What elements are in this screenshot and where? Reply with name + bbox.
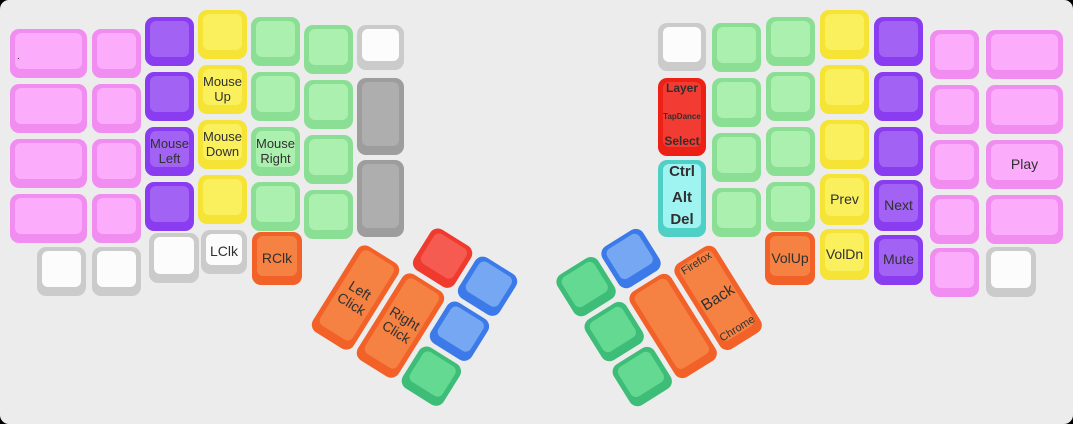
key-left-c5-r2[interactable] (251, 72, 300, 121)
keycap-top-surface (15, 33, 82, 69)
key-left-c4-r2[interactable]: Mouse Up (198, 65, 247, 114)
key-left-c3-bottom[interactable] (149, 233, 199, 283)
keycap-top-surface (203, 14, 242, 50)
key-left-c3-r1[interactable] (145, 17, 194, 66)
keycap-top-surface (991, 199, 1058, 235)
keycap-top-surface (825, 124, 864, 160)
keycap-top-surface (362, 29, 399, 61)
key-left-rclk[interactable]: RClk (252, 232, 302, 285)
keycap-top-surface (463, 259, 514, 309)
key-left-c7-r1[interactable] (357, 25, 404, 70)
keycap-top-surface (309, 84, 348, 120)
keycap-top-surface (879, 239, 918, 276)
keycap-top-surface (935, 89, 974, 125)
key-right-layer-select[interactable]: LayerTapDanceSelect (658, 78, 706, 156)
keycap-top-surface (257, 236, 297, 276)
keycap-top-surface (616, 349, 667, 399)
key-left-c5-r4[interactable] (251, 182, 300, 231)
key-left-c3-r4[interactable] (145, 182, 194, 231)
keycap-top-surface (203, 179, 242, 215)
key-right-c6-r3[interactable] (712, 133, 761, 182)
keycap-top-surface (717, 192, 756, 228)
key-left-c5-r1[interactable] (251, 17, 300, 66)
keycap-top-surface (604, 232, 655, 282)
key-left-c6-r3[interactable] (304, 135, 353, 184)
keycap-top-surface (935, 34, 974, 70)
key-left-c2-r3[interactable] (92, 139, 141, 188)
keymap-editor-canvas: .Mouse LeftMouse UpMouse DownLClkMouse R… (0, 0, 1073, 424)
keycap-top-surface (206, 234, 242, 265)
key-right-mute[interactable]: Mute (874, 235, 923, 285)
key-left-c2-r4[interactable] (92, 194, 141, 243)
keycap-top-surface (825, 233, 864, 271)
keycap-top-surface (717, 137, 756, 173)
keycap-top-surface (991, 144, 1058, 180)
key-right-c5-r2[interactable] (766, 72, 815, 121)
key-left-c1-r1[interactable]: . (10, 29, 87, 78)
keycap-top-surface (991, 34, 1058, 70)
keycap-top-surface (825, 14, 864, 50)
key-left-c6-r2[interactable] (304, 80, 353, 129)
keycap-top-surface (879, 184, 918, 222)
key-right-play[interactable]: Play (986, 140, 1063, 189)
key-right-c5-r1[interactable] (766, 17, 815, 66)
key-right-next[interactable]: Next (874, 180, 923, 231)
keycap-top-surface (407, 349, 458, 399)
key-right-c4-r2[interactable] (820, 65, 869, 114)
key-right-c1-r4[interactable] (986, 195, 1063, 244)
key-right-c4-r1[interactable] (820, 10, 869, 59)
keycap-top-surface (771, 186, 810, 222)
key-right-c3-r3[interactable] (874, 127, 923, 176)
keycap-top-surface (15, 88, 82, 124)
keycap-top-surface (559, 260, 610, 310)
key-left-c3-r3[interactable]: Mouse Left (145, 127, 194, 176)
keycap-top-surface (256, 186, 295, 222)
keycap-top-surface (203, 124, 242, 160)
keycap-top-surface (771, 131, 810, 167)
keycap-top-surface (825, 178, 864, 216)
keycap-top-surface (256, 21, 295, 57)
key-left-c2-r1[interactable] (92, 29, 141, 78)
keycap-top-surface (154, 237, 194, 274)
keycap-top-surface (879, 76, 918, 112)
key-left-c5-r3[interactable]: Mouse Right (251, 127, 300, 176)
keycap-top-surface (991, 251, 1031, 288)
keycap-top-surface (97, 198, 136, 234)
key-right-c2-r2[interactable] (930, 85, 979, 134)
key-right-c2-r3[interactable] (930, 140, 979, 189)
key-left-c6-r1[interactable] (304, 25, 353, 74)
key-right-c5-r4[interactable] (766, 182, 815, 231)
keycap-top-surface (309, 194, 348, 230)
key-right-voldn[interactable]: VolDn (820, 229, 869, 280)
key-left-c1-r4[interactable] (10, 194, 87, 243)
key-right-c6-r2[interactable] (712, 78, 761, 127)
keycap-top-surface (435, 304, 486, 354)
keycap-top-surface (663, 82, 701, 147)
keycap-top-surface (879, 131, 918, 167)
key-right-c2-r1[interactable] (930, 30, 979, 79)
keycap-top-surface (150, 76, 189, 112)
keycap-top-surface (203, 69, 242, 105)
key-left-c1-bottom[interactable] (37, 247, 86, 296)
keycap-top-surface (256, 131, 295, 167)
key-right-c1-r2[interactable] (986, 85, 1063, 134)
key-right-c2-r5[interactable] (930, 248, 979, 297)
key-left-c6-r4[interactable] (304, 190, 353, 239)
key-right-c6-r1[interactable] (712, 23, 761, 72)
key-left-c1-r3[interactable] (10, 139, 87, 188)
keycap-top-surface (97, 33, 136, 69)
keycap-top-surface (419, 231, 470, 281)
key-left-lclk[interactable]: LClk (201, 230, 247, 274)
keycap-top-surface (42, 251, 81, 287)
keycap-top-surface (150, 186, 189, 222)
keycap-top-surface (935, 144, 974, 180)
keycap-top-surface (309, 29, 348, 65)
keycap-top-surface (97, 251, 136, 287)
keycap-top-surface (150, 131, 189, 167)
keycap-top-surface (309, 139, 348, 175)
keycap-top-surface (991, 89, 1058, 125)
keycap-top-surface (879, 21, 918, 57)
key-right-c2-r4[interactable] (930, 195, 979, 244)
key-left-c2-bottom[interactable] (92, 247, 141, 296)
keycap-top-surface (825, 69, 864, 105)
keycap-top-surface (935, 252, 974, 288)
key-right-c3-r1[interactable] (874, 17, 923, 66)
keycap-top-surface (770, 236, 810, 276)
key-left-c3-r2[interactable] (145, 72, 194, 121)
keycap-top-surface (771, 76, 810, 112)
key-left-c4-r1[interactable] (198, 10, 247, 59)
key-right-c1-r1[interactable] (986, 30, 1063, 79)
keycap-top-surface (97, 143, 136, 179)
keycap-top-surface (362, 82, 399, 146)
keycap-top-surface (717, 27, 756, 63)
keycap-top-surface (771, 21, 810, 57)
keycap-top-surface (150, 21, 189, 57)
key-right-prev[interactable]: Prev (820, 174, 869, 225)
key-right-c1-bottom[interactable] (986, 247, 1036, 297)
key-left-c4-r3[interactable]: Mouse Down (198, 120, 247, 169)
key-right-c6-r4[interactable] (712, 188, 761, 237)
key-right-c4-r3[interactable] (820, 120, 869, 169)
key-right-c5-r3[interactable] (766, 127, 815, 176)
key-right-c7-r1[interactable] (658, 23, 706, 71)
key-left-c7-tall1[interactable] (357, 78, 404, 155)
keycap-top-surface (97, 88, 136, 124)
keycap-top-surface (663, 27, 701, 62)
keycap-top-surface (15, 198, 82, 234)
keycap-top-surface (256, 76, 295, 112)
key-right-volup[interactable]: VolUp (765, 232, 815, 285)
keycap-top-surface (717, 82, 756, 118)
key-left-c4-r4[interactable] (198, 175, 247, 224)
key-left-c2-r2[interactable] (92, 84, 141, 133)
key-left-c1-r2[interactable] (10, 84, 87, 133)
key-right-c3-r2[interactable] (874, 72, 923, 121)
keycap-top-surface (935, 199, 974, 235)
keycap-top-surface (587, 305, 638, 355)
keycap-top-surface (15, 143, 82, 179)
